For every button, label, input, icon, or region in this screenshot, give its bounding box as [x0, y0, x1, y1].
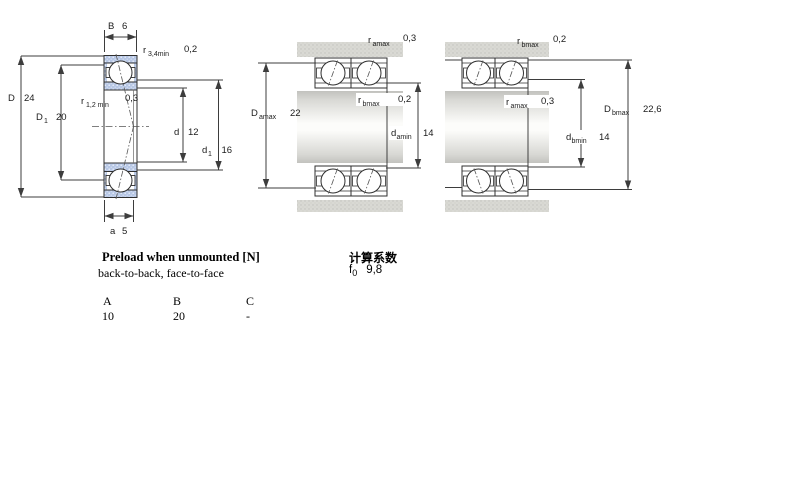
dim-D-label: D [8, 93, 15, 104]
dim-Damax-label: D [251, 108, 258, 119]
dim-dbmin-sub: bmin [572, 138, 587, 145]
dim-rbmax-value: 0,2 [553, 34, 566, 45]
factor-value: 9,8 [366, 264, 382, 276]
dim-damin-value: 14 [423, 128, 434, 139]
dim-r12-sub: 1,2 min [86, 102, 109, 109]
dim-dbmin-label: d [566, 132, 571, 143]
arrangement-diagram-right: D bmax 22,6 d bmin 14 r bmax 0,2 r amax … [445, 34, 662, 212]
dim-r12-value: 0,3 [125, 93, 138, 104]
dim-r12-label: r [81, 96, 84, 107]
calculation-factor: f09,8 [349, 264, 382, 276]
housing-section-bottom [297, 200, 403, 212]
preload-col-header-c: C [246, 294, 254, 309]
bearing-drawings: B 6 r 3,4min 0,2 D 24 D 1 20 r 1,2 min 0… [0, 0, 800, 240]
dim-D1-sub: 1 [44, 118, 48, 125]
dim-Damax-sub: amax [259, 114, 277, 121]
dim-D [21, 56, 104, 197]
housing-section-bottom [445, 200, 549, 212]
preload-value-b: 20 [173, 309, 185, 324]
dim-d1-value: 16 [222, 145, 233, 156]
preload-value-c: - [246, 309, 250, 324]
dim-r34-sub: 3,4min [148, 51, 169, 58]
dim-D1-label: D [36, 112, 43, 123]
dim-rbmax-label: r [358, 95, 361, 106]
dim-rbmax-label: r [517, 36, 520, 47]
dim-damin-sub: amin [397, 134, 412, 141]
preload-col-header-a: A [103, 294, 112, 309]
arrangement-diagram-left: D amax 22 d amin 14 r amax 0,3 r bmax 0,… [251, 33, 434, 212]
bearing-pair-bottom [462, 166, 528, 196]
dim-D1 [61, 65, 104, 180]
dim-d [137, 88, 187, 162]
dim-rbmax-value: 0,2 [398, 94, 411, 105]
dim-ramax-value: 0,3 [541, 96, 554, 107]
dim-B-label: B [108, 21, 114, 32]
bearing-pair-top [315, 58, 387, 88]
dim-ramax-sub: amax [373, 41, 391, 48]
preload-subtitle: back-to-back, face-to-face [98, 266, 224, 281]
bearing-pair-bottom [315, 166, 387, 196]
dim-ramax-label: r [506, 97, 509, 108]
dim-rbmax-sub: bmax [522, 42, 540, 49]
ball-bottom [109, 169, 132, 192]
dim-r34-label: r [143, 45, 146, 56]
dim-a [105, 200, 134, 222]
dim-rbmax-sub: bmax [363, 101, 381, 108]
preload-title: Preload when unmounted [N] [102, 250, 260, 265]
dim-d-value: 12 [188, 127, 199, 138]
dim-Dbmax-sub: bmax [612, 110, 630, 117]
dim-a-label: a [110, 226, 116, 237]
dim-damin-label: d [391, 128, 396, 139]
dim-Damax-value: 22 [290, 108, 301, 119]
dim-d1-sub: 1 [208, 151, 212, 158]
dim-ramax-label: r [368, 35, 371, 46]
dim-B [105, 30, 137, 52]
dim-ramax-value: 0,3 [403, 33, 416, 44]
dim-B-value: 6 [122, 21, 127, 32]
dim-d-label: d [174, 127, 179, 138]
dim-Dbmax-label: D [604, 104, 611, 115]
dim-d1-label: d [202, 145, 207, 156]
dim-D-value: 24 [24, 93, 35, 104]
dim-D1-value: 20 [56, 112, 67, 123]
preload-value-a: 10 [102, 309, 114, 324]
factor-subscript: 0 [352, 268, 357, 278]
dim-dbmin-value: 14 [599, 132, 610, 143]
dim-ramax-sub: amax [511, 103, 529, 110]
dim-a-value: 5 [122, 226, 127, 237]
ball-top [109, 61, 132, 84]
bearing-pair-top [462, 58, 528, 88]
dim-Dbmax-value: 22,6 [643, 104, 662, 115]
single-bearing-cross-section: B 6 r 3,4min 0,2 D 24 D 1 20 r 1,2 min 0… [8, 21, 232, 237]
preload-col-header-b: B [173, 294, 181, 309]
bearing-datasheet-page: B 6 r 3,4min 0,2 D 24 D 1 20 r 1,2 min 0… [0, 0, 800, 500]
dim-r34-value: 0,2 [184, 44, 197, 55]
